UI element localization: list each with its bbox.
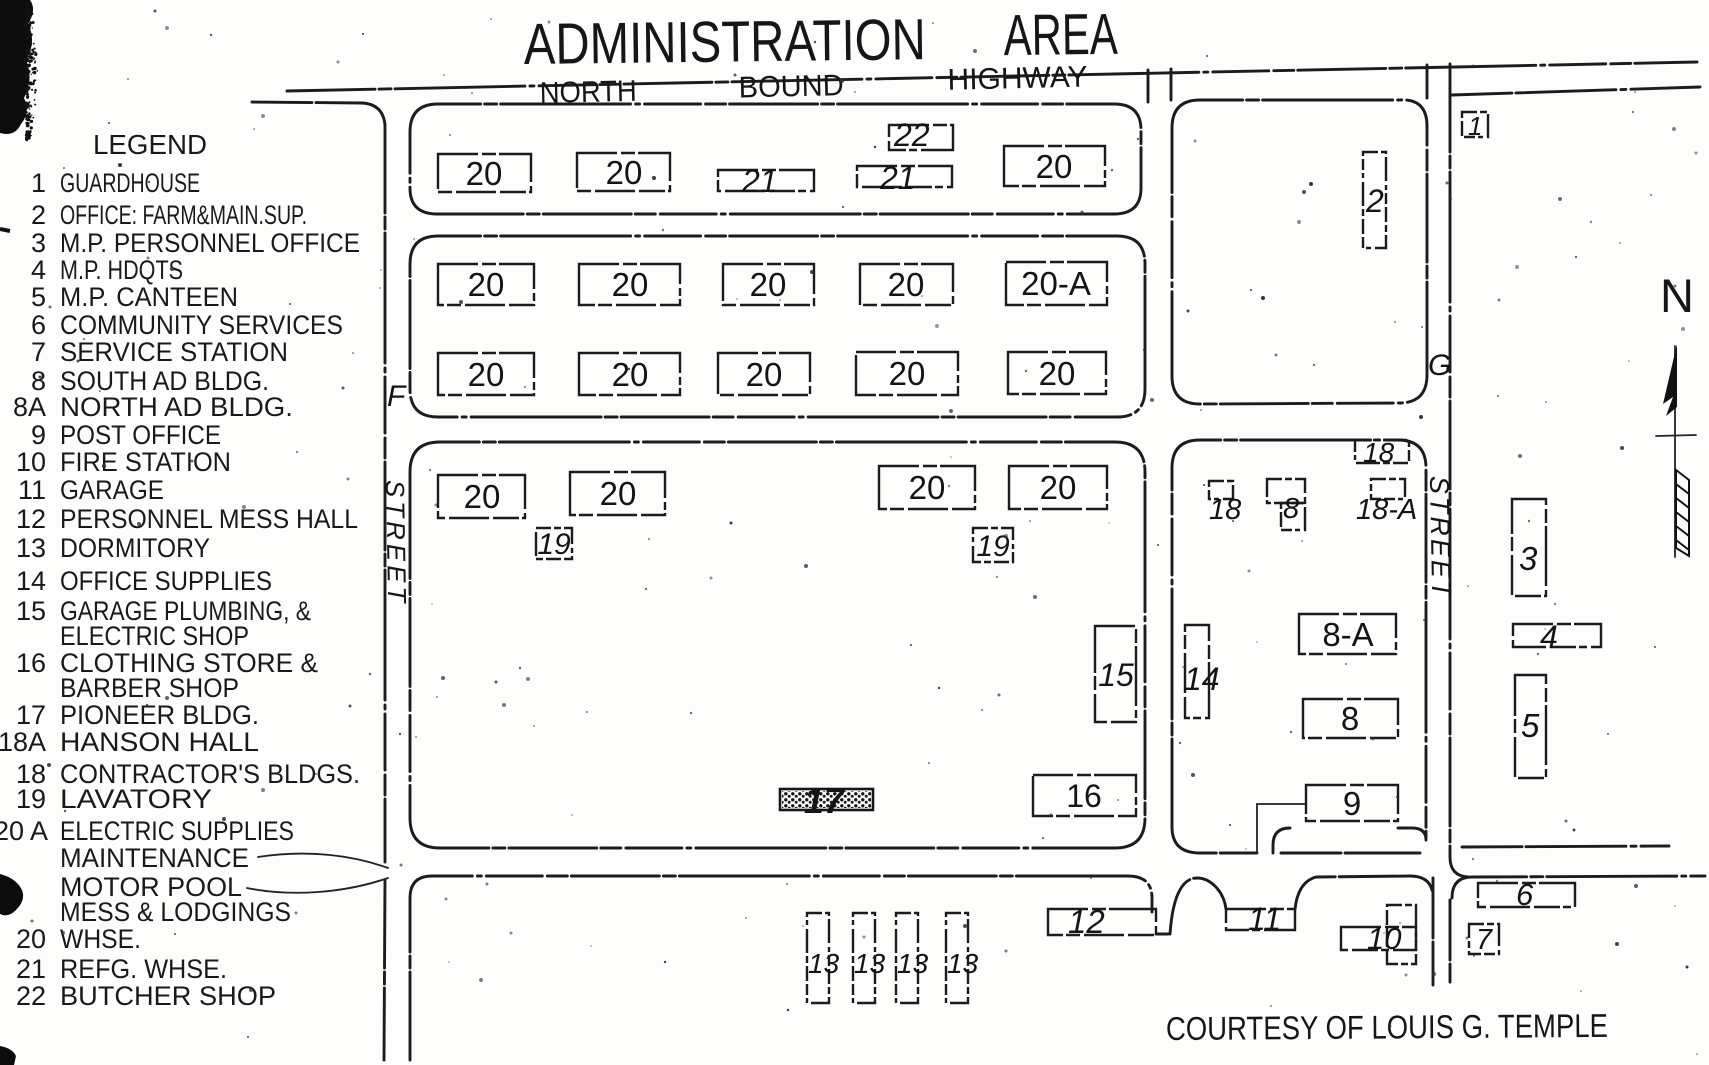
svg-text:13: 13	[897, 948, 929, 979]
svg-text:11: 11	[18, 475, 46, 505]
svg-text:10: 10	[1367, 921, 1401, 956]
svg-text:GUARDHOUSE: GUARDHOUSE	[60, 168, 200, 198]
svg-text:G: G	[1428, 349, 1451, 382]
svg-text:BARBER SHOP: BARBER SHOP	[60, 673, 239, 703]
svg-text:LEGEND: LEGEND	[93, 129, 207, 160]
svg-text:20: 20	[468, 356, 505, 393]
svg-text:REFG. WHSE.: REFG. WHSE.	[60, 954, 227, 984]
svg-text:6: 6	[31, 310, 46, 340]
svg-text:DORMITORY: DORMITORY	[60, 533, 210, 563]
svg-text:NORTH AD BLDG.: NORTH AD BLDG.	[60, 392, 293, 422]
svg-text:20 A: 20 A	[0, 816, 48, 846]
svg-text:22: 22	[16, 981, 46, 1011]
svg-text:20: 20	[16, 924, 46, 954]
svg-text:20: 20	[612, 356, 649, 393]
svg-text:7: 7	[31, 337, 46, 367]
svg-text:8A: 8A	[13, 392, 46, 422]
svg-text:OFFICE SUPPLIES: OFFICE SUPPLIES	[60, 566, 272, 596]
svg-text:7: 7	[1476, 924, 1494, 956]
svg-text:20: 20	[606, 154, 643, 191]
svg-text:MAINTENANCE: MAINTENANCE	[60, 843, 249, 873]
svg-text:17: 17	[804, 780, 846, 821]
svg-text:M.P. HDQTS: M.P. HDQTS	[60, 255, 183, 285]
svg-text:8: 8	[1283, 493, 1299, 525]
svg-text:20: 20	[746, 356, 783, 393]
svg-text:STREET: STREET	[380, 480, 412, 607]
svg-text:13: 13	[808, 948, 840, 979]
svg-text:5: 5	[1521, 707, 1540, 744]
svg-text:8: 8	[1341, 700, 1359, 737]
svg-text:19: 19	[537, 528, 571, 561]
svg-text:ELECTRIC SUPPLIES: ELECTRIC SUPPLIES	[60, 816, 294, 846]
svg-text:18-A: 18-A	[1356, 494, 1417, 526]
svg-text:13: 13	[854, 948, 886, 979]
svg-text:WHSE.: WHSE.	[60, 924, 141, 954]
svg-text:20: 20	[750, 266, 787, 303]
svg-text:14: 14	[16, 566, 46, 596]
svg-text:LAVATORY: LAVATORY	[60, 784, 212, 814]
svg-text:N: N	[1660, 269, 1694, 322]
svg-text:20: 20	[600, 475, 637, 512]
svg-text:20: 20	[1036, 148, 1073, 185]
svg-text:12: 12	[16, 504, 46, 534]
svg-text:15: 15	[16, 596, 46, 626]
svg-text:M.P. CANTEEN: M.P. CANTEEN	[60, 282, 238, 312]
svg-text:5: 5	[31, 282, 46, 312]
svg-text:20: 20	[1040, 469, 1077, 506]
svg-text:1: 1	[31, 168, 46, 198]
svg-text:18: 18	[1363, 437, 1395, 468]
svg-text:ADMINISTRATION: ADMINISTRATION	[523, 7, 926, 77]
svg-text:3: 3	[1519, 540, 1538, 577]
svg-text:18: 18	[1209, 494, 1241, 526]
svg-text:4: 4	[1540, 619, 1558, 655]
svg-text:20: 20	[909, 469, 946, 506]
svg-text:PERSONNEL MESS HALL: PERSONNEL MESS HALL	[60, 504, 358, 534]
svg-text:GARAGE: GARAGE	[60, 475, 164, 505]
svg-text:9: 9	[31, 420, 46, 450]
svg-text:19: 19	[16, 784, 46, 814]
svg-text:20: 20	[888, 266, 925, 303]
svg-text:13: 13	[16, 533, 46, 563]
svg-text:17: 17	[16, 700, 46, 730]
svg-text:8-A: 8-A	[1322, 616, 1373, 653]
svg-text:BOUND: BOUND	[738, 69, 844, 104]
svg-text:MESS & LODGINGS: MESS & LODGINGS	[60, 897, 291, 927]
svg-text:M.P. PERSONNEL OFFICE: M.P. PERSONNEL OFFICE	[60, 228, 360, 258]
svg-text:AREA: AREA	[1003, 2, 1118, 68]
svg-text:18A: 18A	[0, 727, 46, 757]
svg-text:2: 2	[31, 200, 46, 230]
svg-text:22: 22	[893, 117, 930, 153]
svg-text:F: F	[387, 380, 407, 413]
svg-text:20: 20	[612, 266, 649, 303]
svg-text:COMMUNITY SERVICES: COMMUNITY SERVICES	[60, 310, 343, 340]
svg-text:SERVICE STATION: SERVICE STATION	[60, 337, 288, 367]
svg-text:16: 16	[1066, 778, 1102, 814]
svg-text:16: 16	[16, 648, 46, 678]
svg-text:21: 21	[879, 160, 916, 196]
svg-text:21: 21	[741, 163, 778, 199]
svg-text:15: 15	[1098, 657, 1134, 693]
svg-text:20: 20	[889, 355, 926, 392]
svg-text:4: 4	[31, 255, 46, 285]
svg-text:21: 21	[16, 954, 46, 984]
svg-text:20: 20	[466, 155, 503, 192]
svg-text:20-A: 20-A	[1021, 265, 1091, 302]
svg-text:PIONEER BLDG.: PIONEER BLDG.	[60, 700, 259, 730]
svg-text:STREET: STREET	[1424, 476, 1456, 601]
svg-text:2: 2	[1365, 183, 1384, 219]
svg-text:11: 11	[1248, 901, 1281, 937]
svg-text:9: 9	[1343, 785, 1361, 822]
svg-text:ELECTRIC SHOP: ELECTRIC SHOP	[60, 621, 249, 651]
svg-text:20: 20	[464, 478, 501, 515]
svg-text:POST OFFICE: POST OFFICE	[60, 420, 221, 450]
svg-text:COURTESY OF LOUIS G. TEMPLE: COURTESY OF LOUIS G. TEMPLE	[1166, 1007, 1608, 1047]
svg-text:6: 6	[1516, 877, 1534, 912]
svg-text:1: 1	[1468, 111, 1482, 141]
svg-text:14: 14	[1184, 661, 1220, 697]
svg-text:20: 20	[468, 266, 505, 303]
svg-text:BUTCHER SHOP: BUTCHER SHOP	[60, 981, 276, 1011]
svg-text:3: 3	[31, 228, 46, 258]
svg-text:FIRE STATION: FIRE STATION	[60, 447, 231, 477]
svg-text:12: 12	[1068, 903, 1105, 940]
svg-text:OFFICE: FARM&MAIN.SUP.: OFFICE: FARM&MAIN.SUP.	[60, 200, 307, 230]
svg-text:20: 20	[1039, 355, 1076, 392]
svg-text:HIGHWAY: HIGHWAY	[947, 61, 1088, 97]
svg-text:10: 10	[16, 447, 46, 477]
svg-text:13: 13	[947, 948, 979, 979]
svg-text:HANSON HALL: HANSON HALL	[60, 727, 259, 757]
